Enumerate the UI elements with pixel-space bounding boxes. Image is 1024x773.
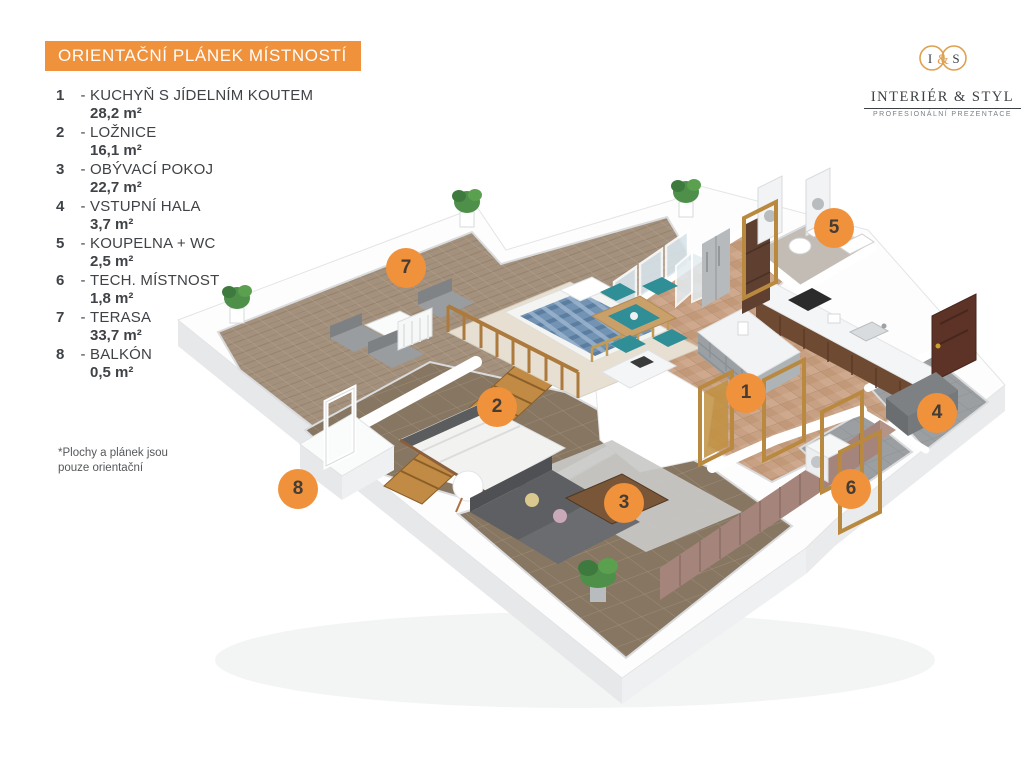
- legend-item-1: 1-KUCHYŇ S JÍDELNÍM KOUTEM 28,2 m²: [56, 87, 356, 123]
- legend-room-name: KOUPELNA + WC: [90, 235, 356, 253]
- legend-room-name: VSTUPNÍ HALA: [90, 198, 356, 216]
- room-legend: 1-KUCHYŇ S JÍDELNÍM KOUTEM 28,2 m² 2-LOŽ…: [56, 87, 356, 383]
- legend-item-2: 2-LOŽNICE 16,1 m²: [56, 124, 356, 160]
- room-marker-8: 8: [278, 469, 318, 509]
- legend-number: 7: [56, 309, 76, 327]
- room-marker-4: 4: [917, 393, 957, 433]
- disclaimer-note: *Plochy a plánek jsou pouze orientační: [58, 446, 168, 476]
- legend-room-area: 33,7 m²: [90, 327, 356, 345]
- room-marker-5: 5: [814, 208, 854, 248]
- legend-item-5: 5-KOUPELNA + WC 2,5 m²: [56, 235, 356, 271]
- logo-ampersand: &: [937, 52, 949, 68]
- logo-company-name: INTERIÉR & STYL: [860, 89, 1024, 106]
- legend-room-area: 1,8 m²: [90, 290, 356, 308]
- page-title: ORIENTAČNÍ PLÁNEK MÍSTNOSTÍ: [45, 41, 361, 71]
- logo-tagline: PROFESIONÁLNÍ PREZENTACE: [860, 111, 1024, 118]
- legend-room-area: 22,7 m²: [90, 179, 356, 197]
- room-marker-2: 2: [477, 387, 517, 427]
- disclaimer-line-1: *Plochy a plánek jsou: [58, 446, 168, 461]
- legend-separator: -: [76, 346, 90, 364]
- room-marker-2-number: 2: [492, 396, 503, 418]
- open-door-leaf: [704, 380, 728, 458]
- legend-room-area: 3,7 m²: [90, 216, 356, 234]
- legend-separator: -: [76, 272, 90, 290]
- room-marker-3-number: 3: [619, 492, 630, 514]
- legend-separator: -: [76, 235, 90, 253]
- legend-number: 3: [56, 161, 76, 179]
- legend-number: 6: [56, 272, 76, 290]
- room-marker-4-number: 4: [932, 402, 943, 424]
- legend-room-name: KUCHYŇ S JÍDELNÍM KOUTEM: [90, 87, 356, 105]
- legend-separator: -: [76, 309, 90, 327]
- legend-room-name: OBÝVACÍ POKOJ: [90, 161, 356, 179]
- legend-item-6: 6-TECH. MÍSTNOST 1,8 m²: [56, 272, 356, 308]
- legend-number: 1: [56, 87, 76, 105]
- legend-number: 5: [56, 235, 76, 253]
- logo-letter-s: S: [952, 51, 959, 66]
- logo-mark: I & S: [860, 38, 1024, 82]
- legend-room-name: LOŽNICE: [90, 124, 356, 142]
- legend-room-area: 0,5 m²: [90, 364, 356, 382]
- legend-room-area: 2,5 m²: [90, 253, 356, 271]
- room-marker-1-number: 1: [741, 382, 752, 404]
- legend-item-4: 4-VSTUPNÍ HALA 3,7 m²: [56, 198, 356, 234]
- room-marker-1: 1: [726, 373, 766, 413]
- logo-letter-i: I: [928, 51, 932, 66]
- legend-room-area: 16,1 m²: [90, 142, 356, 160]
- company-logo: I & S INTERIÉR & STYL PROFESIONÁLNÍ PREZ…: [860, 38, 1024, 118]
- legend-room-name: BALKÓN: [90, 346, 356, 364]
- legend-room-name: TECH. MÍSTNOST: [90, 272, 356, 290]
- room-marker-6-number: 6: [846, 478, 857, 500]
- room-marker-3: 3: [604, 483, 644, 523]
- legend-room-name: TERASA: [90, 309, 356, 327]
- legend-separator: -: [76, 198, 90, 216]
- legend-number: 2: [56, 124, 76, 142]
- legend-separator: -: [76, 124, 90, 142]
- room-marker-7: 7: [386, 248, 426, 288]
- legend-item-7: 7-TERASA 33,7 m²: [56, 309, 356, 345]
- logo-divider: [864, 108, 1021, 109]
- disclaimer-line-2: pouze orientační: [58, 461, 168, 476]
- legend-number: 4: [56, 198, 76, 216]
- legend-separator: -: [76, 87, 90, 105]
- legend-separator: -: [76, 161, 90, 179]
- room-marker-8-number: 8: [293, 478, 304, 500]
- room-marker-7-number: 7: [401, 257, 412, 279]
- legend-room-area: 28,2 m²: [90, 105, 356, 123]
- room-marker-5-number: 5: [829, 217, 840, 239]
- legend-item-8: 8-BALKÓN 0,5 m²: [56, 346, 356, 382]
- legend-number: 8: [56, 346, 76, 364]
- room-marker-6: 6: [831, 469, 871, 509]
- legend-item-3: 3-OBÝVACÍ POKOJ 22,7 m²: [56, 161, 356, 197]
